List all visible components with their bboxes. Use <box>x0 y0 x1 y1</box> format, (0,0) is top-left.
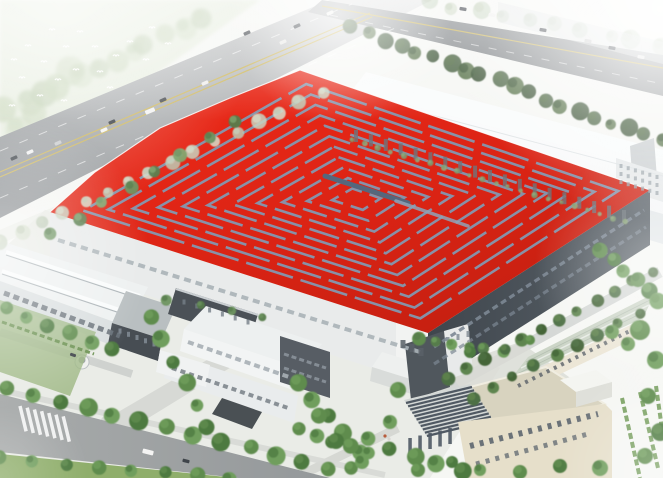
tree-highlight <box>228 307 233 312</box>
window-strip <box>503 174 507 186</box>
window-strip <box>247 320 250 325</box>
window-strip <box>438 431 442 447</box>
tree-highlight <box>495 182 498 185</box>
tree-highlight <box>200 420 209 429</box>
tree-highlight <box>552 350 559 357</box>
tree-highlight <box>131 412 142 423</box>
tree-highlight <box>455 168 458 171</box>
tree-highlight <box>384 416 392 424</box>
tree-highlight <box>508 372 514 378</box>
tree-highlight <box>191 468 199 476</box>
tree-highlight <box>488 383 494 389</box>
tree-highlight <box>350 138 353 141</box>
tree-highlight <box>546 197 549 200</box>
window-strip <box>221 312 224 317</box>
tree-highlight <box>145 310 153 318</box>
tree-highlight <box>81 399 91 409</box>
tree-highlight <box>428 160 431 163</box>
tree-highlight <box>391 383 400 392</box>
tree-highlight <box>447 457 454 464</box>
tree-highlight <box>388 150 391 153</box>
tree-highlight <box>506 185 508 187</box>
tree-highlight <box>312 409 321 418</box>
tree-highlight <box>431 337 437 343</box>
tree-highlight <box>322 463 330 471</box>
tree-highlight <box>415 158 418 161</box>
tree-highlight <box>294 423 301 430</box>
campus-aerial-rendering <box>0 0 663 478</box>
tree-highlight <box>401 153 405 157</box>
tree-highlight <box>480 177 483 180</box>
window-strip <box>208 308 211 313</box>
tree-highlight <box>479 353 487 361</box>
tree-highlight <box>192 400 199 407</box>
tree-highlight <box>516 334 523 341</box>
tree-highlight <box>180 375 190 385</box>
tree-highlight <box>126 465 133 472</box>
window-strip <box>467 331 470 337</box>
tree-highlight <box>197 301 202 306</box>
window-strip <box>457 334 460 340</box>
window-strip <box>234 316 237 321</box>
window-strip <box>488 170 492 182</box>
tree-highlight <box>537 325 543 331</box>
tree-highlight <box>363 448 370 455</box>
tree-highlight <box>447 339 453 345</box>
tree-highlight <box>185 427 195 437</box>
window-strip <box>384 139 388 151</box>
tree-highlight <box>461 363 468 370</box>
tree-highlight <box>305 392 314 401</box>
tree-highlight <box>335 425 345 435</box>
scene-canvas <box>0 0 663 478</box>
tree-highlight <box>412 464 420 472</box>
tree-highlight <box>465 347 472 354</box>
person <box>387 437 390 440</box>
window-strip <box>448 428 452 444</box>
window-strip <box>410 344 415 352</box>
tree-highlight <box>268 447 278 457</box>
window-strip <box>419 348 424 356</box>
tree-highlight <box>291 375 301 385</box>
window-strip <box>183 300 186 305</box>
window-strip <box>136 335 139 340</box>
tree-highlight <box>375 145 378 148</box>
tree-highlight <box>408 449 418 459</box>
tree-highlight <box>501 345 507 351</box>
window-strip <box>401 340 406 348</box>
tree-highlight <box>93 461 101 469</box>
tree-highlight <box>413 333 421 341</box>
tree-highlight <box>514 466 522 474</box>
tree-highlight <box>478 343 484 349</box>
tree-highlight <box>154 331 164 341</box>
tree-highlight <box>441 165 444 168</box>
window-strip <box>428 433 432 449</box>
tree-highlight <box>213 434 223 444</box>
tree-highlight <box>259 314 263 318</box>
tree-highlight <box>160 419 169 428</box>
tree-highlight <box>468 174 470 176</box>
tree-highlight <box>383 442 391 450</box>
window-strip <box>473 166 477 178</box>
tree-highlight <box>362 141 365 144</box>
tree-highlight <box>429 456 439 466</box>
tree-highlight <box>105 409 114 418</box>
tree-highlight <box>345 462 352 469</box>
tree-highlight <box>245 440 253 448</box>
tree-highlight <box>311 429 319 437</box>
tree-highlight <box>362 432 370 440</box>
tree-highlight <box>532 192 536 196</box>
window-strip <box>144 338 147 343</box>
tree-highlight <box>295 455 304 464</box>
person <box>383 434 386 437</box>
tree-highlight <box>526 336 532 342</box>
tree-highlight <box>160 467 167 474</box>
tree-highlight <box>167 356 174 363</box>
tree-highlight <box>468 393 475 400</box>
tree-highlight <box>519 189 521 191</box>
tree-highlight <box>443 373 451 381</box>
tree-highlight <box>528 360 535 367</box>
tree-highlight <box>329 434 338 443</box>
tree-highlight <box>475 465 482 472</box>
tree-highlight <box>233 128 239 134</box>
tree-highlight <box>344 439 353 448</box>
tree-highlight <box>162 295 168 301</box>
tree-highlight <box>356 456 364 464</box>
window-strip <box>354 130 358 142</box>
window-strip <box>369 134 373 146</box>
